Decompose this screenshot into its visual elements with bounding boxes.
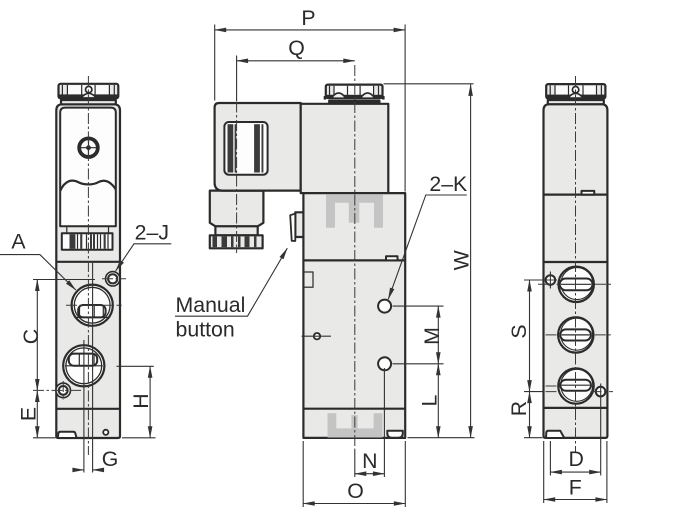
svg-text:M: M: [420, 327, 444, 345]
svg-text:N: N: [362, 449, 377, 473]
svg-text:Manual: Manual: [176, 293, 246, 317]
svg-text:E: E: [17, 407, 41, 421]
svg-text:2–K: 2–K: [429, 172, 467, 196]
svg-text:P: P: [301, 6, 315, 30]
svg-text:D: D: [569, 447, 584, 471]
svg-text:S: S: [507, 324, 531, 338]
svg-text:A: A: [11, 230, 26, 254]
svg-text:2–J: 2–J: [135, 221, 169, 245]
svg-text:W: W: [450, 249, 474, 270]
svg-text:G: G: [102, 447, 119, 471]
svg-text:R: R: [507, 401, 531, 416]
svg-text:H: H: [129, 393, 153, 408]
svg-text:C: C: [19, 329, 43, 344]
svg-text:L: L: [418, 394, 442, 406]
svg-text:O: O: [347, 479, 364, 503]
svg-text:button: button: [176, 318, 235, 342]
svg-text:F: F: [569, 476, 582, 500]
svg-text:Q: Q: [288, 36, 305, 60]
